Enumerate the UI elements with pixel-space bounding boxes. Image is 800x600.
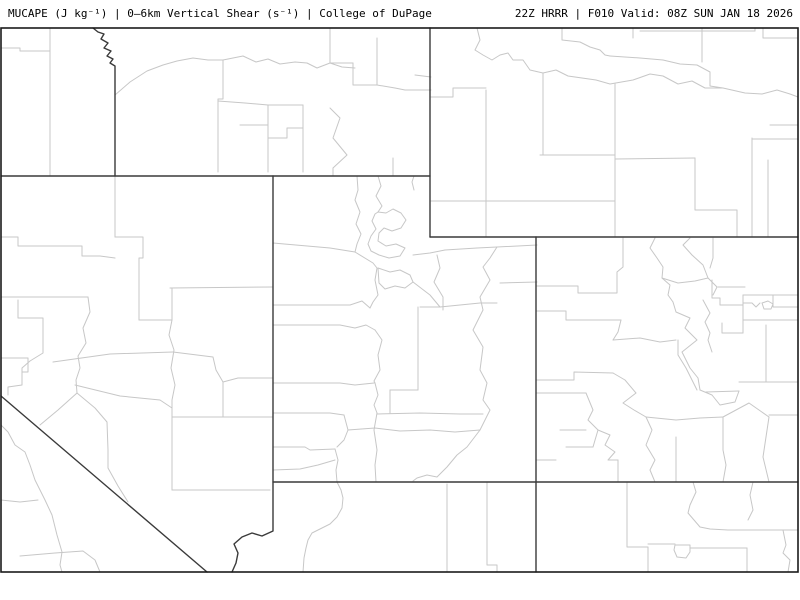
weather-map-svg [0, 0, 800, 600]
weather-map-page: { "header": { "left_title": "MUCAPE (J k… [0, 0, 800, 600]
